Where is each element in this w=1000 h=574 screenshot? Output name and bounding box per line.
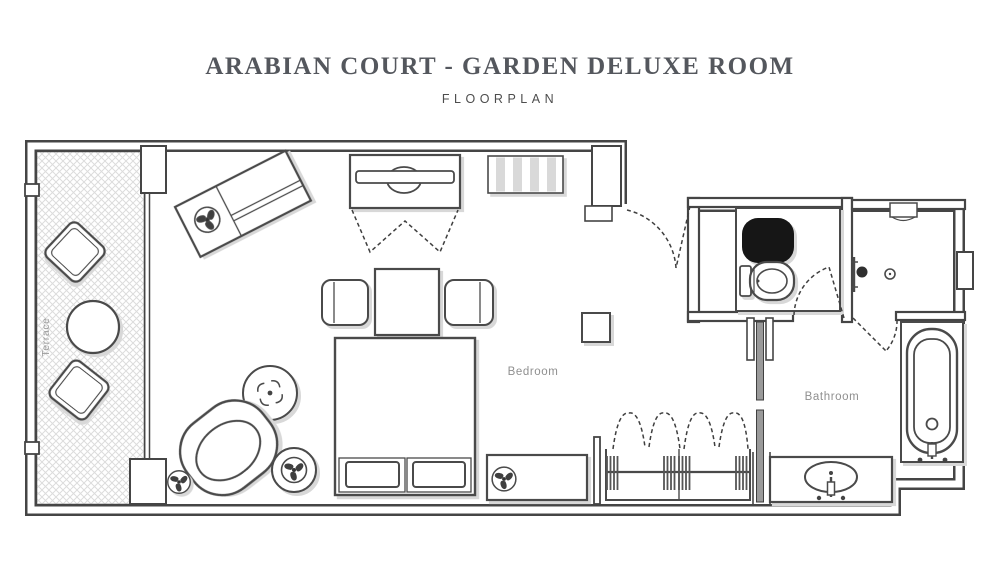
wardrobe	[594, 413, 750, 504]
side-table	[272, 448, 316, 492]
plant-icon	[168, 471, 191, 494]
wall-niche-shelf	[890, 203, 917, 221]
chaise-lounge	[175, 151, 311, 257]
dining-chair-right	[445, 280, 493, 325]
plant-icon	[492, 467, 516, 491]
floorplan-drawing: Terrace Bedroom Bathroom	[0, 0, 1000, 574]
dining-table	[375, 269, 439, 335]
entry-wall	[585, 146, 621, 221]
terrace-round-table	[67, 301, 119, 353]
king-bed	[335, 338, 475, 495]
vanity	[770, 457, 892, 502]
pillow	[413, 462, 465, 487]
wardrobe-door-swing	[613, 413, 748, 449]
shower-drain-icon	[885, 269, 895, 279]
console-table	[487, 455, 587, 500]
plant-icon	[282, 458, 307, 483]
shower-head-icon	[851, 257, 868, 292]
tv-cabinet	[350, 155, 460, 208]
entry-door-swing	[627, 206, 690, 268]
terrace-label: Terrace	[40, 317, 52, 356]
pillow	[346, 462, 399, 487]
toilet	[740, 262, 794, 300]
bathroom-label: Bathroom	[805, 391, 860, 403]
bedroom-label: Bedroom	[508, 366, 559, 378]
bathtub	[901, 322, 963, 462]
black-counter-basin	[742, 218, 794, 263]
shower-room-walls	[852, 200, 965, 320]
striped-bench	[488, 156, 563, 193]
dining-chair-left	[322, 280, 368, 325]
tv-cabinet-door-swing	[352, 210, 458, 252]
terrace-sliding-door	[145, 193, 150, 459]
square-side-table	[582, 313, 610, 342]
wall-niche-bump	[957, 252, 973, 289]
shower-door-swing	[853, 318, 897, 351]
floorplan-page: ARABIAN COURT - GARDEN DELUXE ROOM FLOOR…	[0, 0, 1000, 574]
